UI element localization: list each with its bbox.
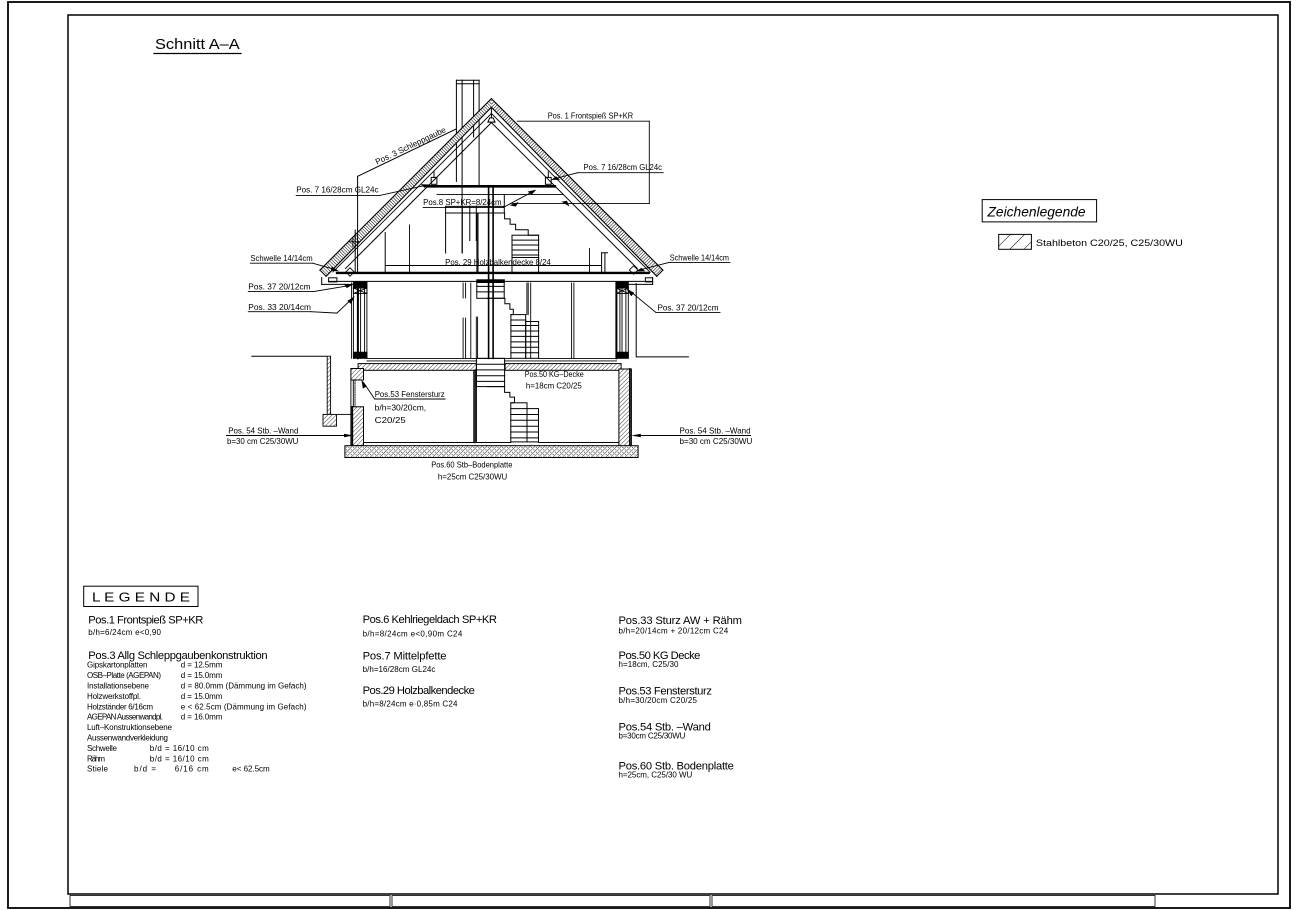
svg-text:d = 16.0mm: d = 16.0mm — [181, 713, 223, 722]
svg-text:b/h=30/20cm C20/25: b/h=30/20cm C20/25 — [619, 696, 698, 705]
svg-text:C20/25: C20/25 — [375, 416, 407, 425]
svg-text:Luft–Konstruktionsebene: Luft–Konstruktionsebene — [87, 723, 173, 732]
svg-text:Holzwerkstoffpl.: Holzwerkstoffpl. — [87, 692, 141, 701]
svg-text:d = 15.0mm: d = 15.0mm — [181, 671, 223, 680]
svg-text:Schwelle 14/14cm: Schwelle 14/14cm — [250, 254, 312, 263]
svg-text:b=30 cm C25/30WU: b=30 cm C25/30WU — [227, 437, 298, 446]
svg-text:b=30cm C25/30WU: b=30cm C25/30WU — [619, 732, 686, 741]
svg-text:b=30 cm C25/30WU: b=30 cm C25/30WU — [680, 437, 753, 446]
svg-text:Installationsebene: Installationsebene — [87, 682, 150, 691]
svg-text:Pos. 33 20/14cm: Pos. 33 20/14cm — [248, 303, 311, 312]
svg-text:Pos.6 Kehlriegeldach SP+KR: Pos.6 Kehlriegeldach SP+KR — [363, 614, 497, 626]
svg-text:b/h=6/24cm e<0,90: b/h=6/24cm e<0,90 — [88, 628, 161, 637]
svg-text:b/h=20/14cm + 20/12cm C24: b/h=20/14cm + 20/12cm C24 — [619, 627, 729, 636]
svg-text:L E G E N D E: L E G E N D E — [92, 591, 190, 605]
svg-text:Schwelle 14/14cm: Schwelle 14/14cm — [670, 253, 729, 262]
svg-text:h=25cm, C25/30 WU: h=25cm, C25/30 WU — [619, 771, 693, 780]
svg-text:d = 15.0mm: d = 15.0mm — [181, 692, 223, 701]
svg-text:b/d = 16/10 cm: b/d = 16/10 cm — [150, 744, 209, 753]
svg-text:Pos.50 KG–Decke: Pos.50 KG–Decke — [525, 369, 584, 379]
svg-text:h=25cm C25/30WU: h=25cm C25/30WU — [438, 471, 507, 481]
svg-text:Pos.1 Frontspieß SP+KR: Pos.1 Frontspieß SP+KR — [88, 615, 203, 627]
svg-text:b/d =: b/d = — [134, 765, 156, 774]
svg-text:Schnitt A–A: Schnitt A–A — [155, 36, 240, 53]
svg-text:Pos. 37 20/12cm: Pos. 37 20/12cm — [658, 304, 719, 313]
svg-text:b/h=16/28cm GL24c: b/h=16/28cm GL24c — [363, 665, 436, 674]
svg-text:Pos.33 Sturz AW + Rähm: Pos.33 Sturz AW + Rähm — [619, 615, 743, 627]
svg-text:Rähm: Rähm — [87, 754, 105, 763]
svg-text:e< 62.5cm: e< 62.5cm — [232, 765, 270, 774]
svg-text:Pos.7 Mittelpfette: Pos.7 Mittelpfette — [363, 650, 447, 662]
svg-text:Aussenwandverkleidung: Aussenwandverkleidung — [87, 734, 168, 743]
svg-text:OSB–Platte (AGEPAN): OSB–Platte (AGEPAN) — [87, 671, 161, 680]
svg-text:Pos.29 Holzbalkendecke: Pos.29 Holzbalkendecke — [363, 685, 475, 697]
svg-text:b/h=8/24cm e·0,85m C24: b/h=8/24cm e·0,85m C24 — [363, 700, 458, 709]
svg-text:Schwelle: Schwelle — [87, 744, 118, 753]
svg-text:Stahlbeton C20/25, C25/30WU: Stahlbeton C20/25, C25/30WU — [1036, 238, 1183, 248]
svg-text:Pos. 54 Stb. –Wand: Pos. 54 Stb. –Wand — [680, 427, 752, 436]
svg-text:h=18cm C20/25: h=18cm C20/25 — [526, 381, 582, 391]
svg-text:Pos.60 Stb–Bodenplatte: Pos.60 Stb–Bodenplatte — [431, 459, 512, 469]
svg-text:b/d = 16/10 cm: b/d = 16/10 cm — [150, 754, 209, 763]
svg-text:h=18cm, C25/30: h=18cm, C25/30 — [619, 660, 680, 669]
svg-text:Pos.8 SP+KR=8/24cm: Pos.8 SP+KR=8/24cm — [423, 198, 502, 207]
svg-text:Pos. 7 16/28cm GL24c: Pos. 7 16/28cm GL24c — [584, 163, 663, 172]
svg-text:Pos. 37 20/12cm: Pos. 37 20/12cm — [248, 282, 310, 291]
svg-text:Pos. 29 Holzbalkendecke 8/24: Pos. 29 Holzbalkendecke 8/24 — [445, 257, 551, 267]
svg-text:d = 80.0mm (Dämmung im Gefach): d = 80.0mm (Dämmung im Gefach) — [181, 682, 307, 691]
svg-text:b/h=8/24cm e<0,90m C24: b/h=8/24cm e<0,90m C24 — [363, 630, 463, 639]
svg-text:Stiele: Stiele — [87, 765, 109, 774]
svg-text:Pos.53 Fenstersturz: Pos.53 Fenstersturz — [375, 390, 445, 399]
svg-text:Zeichenlegende: Zeichenlegende — [986, 205, 1085, 220]
svg-text:e < 62.5cm (Dämmung im Gefach): e < 62.5cm (Dämmung im Gefach) — [181, 702, 307, 711]
svg-text:Gipskartonplatten: Gipskartonplatten — [87, 661, 148, 670]
svg-text:Pos. 1 Frontspieß SP+KR: Pos. 1 Frontspieß SP+KR — [548, 112, 633, 121]
svg-text:Pos. 7 16/28cm GL24c: Pos. 7 16/28cm GL24c — [296, 186, 378, 195]
svg-text:AGEPAN Aussenwandpl.: AGEPAN Aussenwandpl. — [87, 713, 163, 722]
svg-text:Holzständer 6/16cm: Holzständer 6/16cm — [87, 702, 153, 711]
svg-text:Pos. 54 Stb. –Wand: Pos. 54 Stb. –Wand — [228, 427, 299, 436]
svg-text:d = 12.5mm: d = 12.5mm — [181, 661, 223, 670]
svg-text:b/h=30/20cm,: b/h=30/20cm, — [375, 403, 426, 412]
svg-text:6/16 cm: 6/16 cm — [175, 765, 209, 774]
